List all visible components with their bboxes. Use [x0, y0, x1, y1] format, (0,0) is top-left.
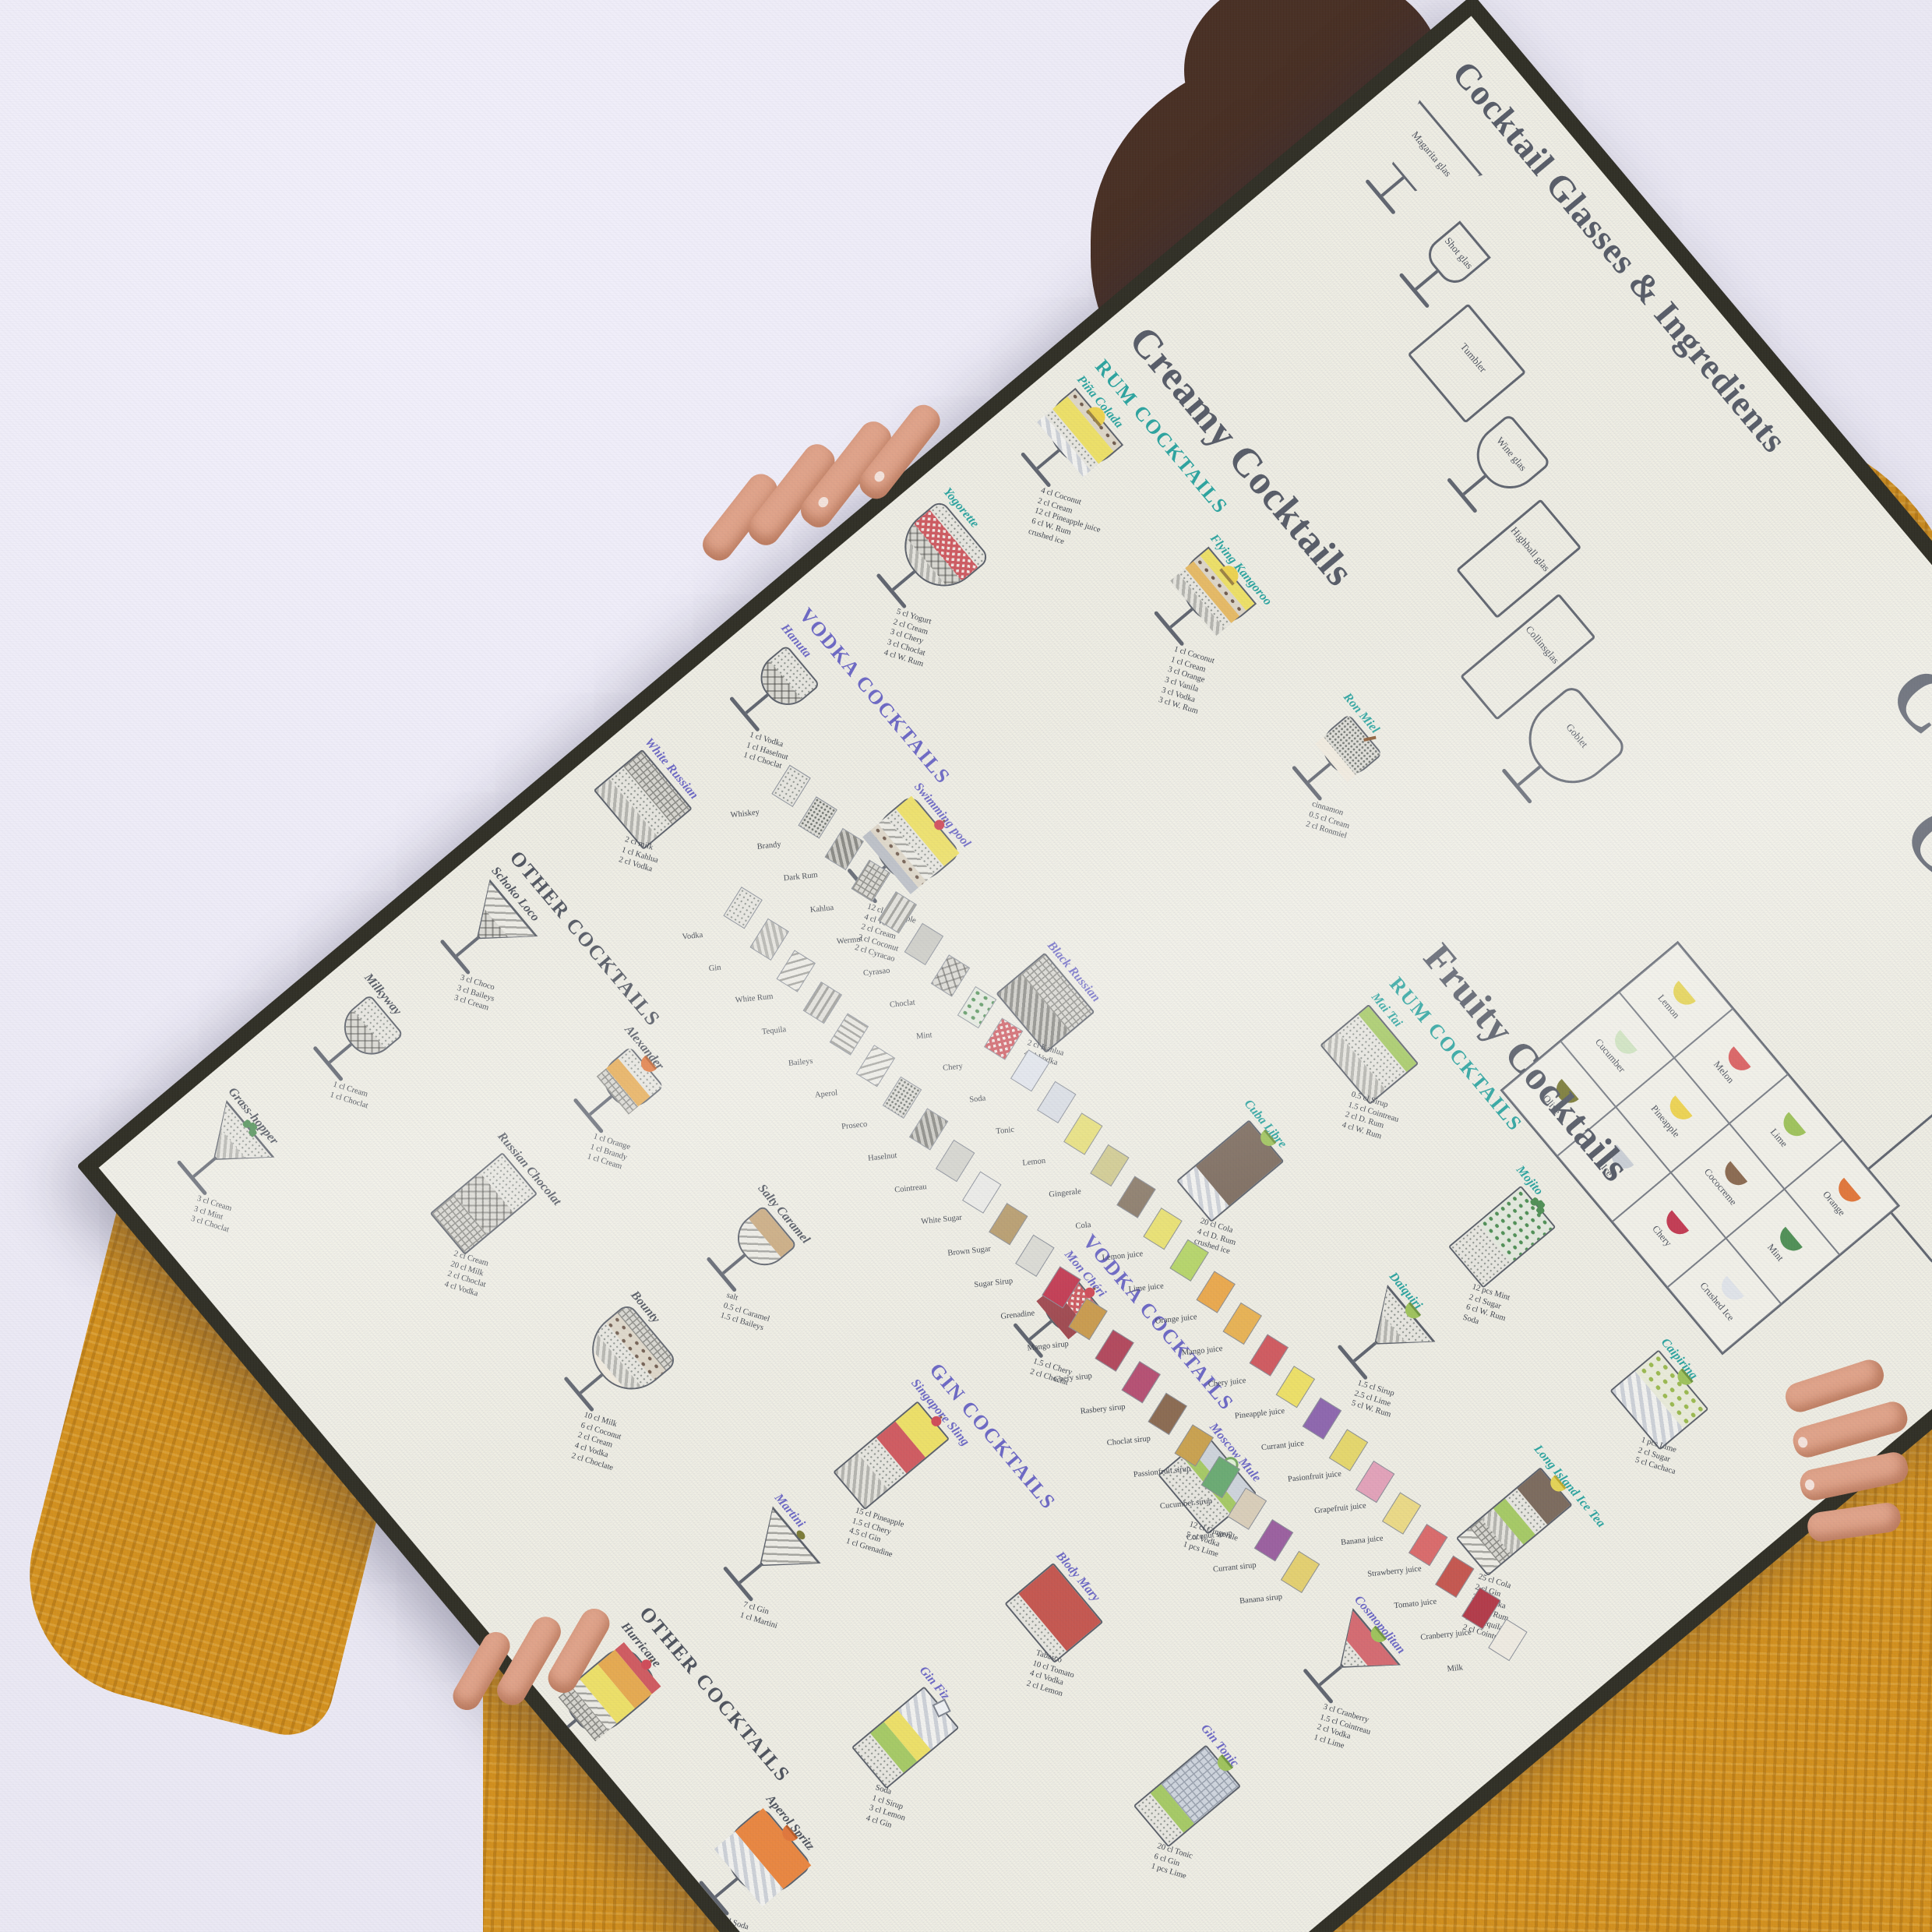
legend-swatch-label: Brown Sugar — [947, 1249, 956, 1258]
ingredient-labels: 0.5 cl Sirup1.5 cl Cointreau2 cl D. Rum4… — [1341, 1089, 1503, 1176]
legend-swatch-label: Cucumber sirup — [1159, 1501, 1168, 1511]
ingredient-labels: 1 cl Coconut1 cl Cream3 cl Orange3 cl Va… — [1157, 644, 1308, 746]
legend-swatch-label: Choclat sirup — [1106, 1438, 1115, 1447]
ingredient-labels: 15 cl Pineapple1.5 cl Chery4.5 cl Gin1 c… — [844, 1506, 1007, 1592]
legend-swatch-label: Pasionfruit juice — [1288, 1475, 1296, 1484]
glass-outline-label: Wine glas — [1487, 427, 1535, 481]
legend-swatch-label: Vodka — [682, 933, 690, 942]
legend-swatch-label: White Rum — [735, 996, 743, 1005]
legend-swatch-label: Choclat — [890, 1000, 898, 1010]
legend-swatch-label: Cola — [1075, 1222, 1084, 1231]
legend-swatch-label: Lemon juice — [1102, 1253, 1110, 1263]
legend-swatch-label: Passionfruit sirup — [1133, 1470, 1141, 1479]
legend-swatch-label: Chery — [943, 1063, 951, 1073]
legend-swatch-label: Sugar Sirup — [974, 1280, 982, 1289]
legend-swatch-label: Dark Rum — [783, 873, 791, 883]
glass-outline-label: Tumbler — [1441, 321, 1506, 395]
legend-swatch-label: Gingerale — [1049, 1190, 1057, 1199]
ingredient-labels: Tabasco10 cl Tomato4 cl Vodka2 cl Lemon — [1025, 1648, 1187, 1735]
legend-swatch-label: Cyrasao — [863, 968, 872, 978]
glass-outline-label: Magarita glas — [1397, 115, 1466, 194]
glass-outline-magarita-glas: Magarita glas — [1348, 100, 1483, 235]
legend-swatch-label: Currant juice — [1261, 1443, 1270, 1452]
legend-swatch-label: Brandy — [756, 842, 765, 851]
legend-swatch-label: Tequila — [761, 1027, 770, 1036]
ingredient-labels: 20 cl Tonic6 cl Gin1 pcs Lime — [1150, 1841, 1310, 1917]
legend-swatch-label: Tomato juice — [1394, 1601, 1402, 1610]
ingredient-labels: 10 cl Milk6 cl Coconut2 cl Cream4 cl Vod… — [570, 1410, 718, 1501]
legend-swatch-label: Gin — [708, 964, 717, 973]
legend-swatch-label: Banana juice — [1341, 1538, 1349, 1547]
legend-swatch-label: Soda — [969, 1095, 978, 1105]
poster-title-line1: COCKTAIL — [1876, 654, 1932, 1133]
legend-swatch-label: Proseco — [841, 1122, 850, 1131]
ingredient-labels: salt0.5 cl Caramel1.5 cl Baileys — [719, 1290, 861, 1361]
glass-outline-label: Shot glas — [1440, 233, 1477, 274]
legend-swatch-label: Rasbery sirup — [1080, 1407, 1088, 1416]
legend-swatch-label: Banana sirup — [1239, 1596, 1248, 1606]
legend-swatch-label: Currant sirup — [1213, 1565, 1222, 1574]
legend-swatch-label: Baileys — [788, 1059, 796, 1068]
legend-swatch-label: Mango sirup — [1027, 1343, 1035, 1352]
legend-swatch-label: Cranberry juice — [1420, 1633, 1429, 1642]
legend-swatch-label: Haselnut — [868, 1154, 876, 1163]
legend-swatch-label: Cointreau — [894, 1185, 903, 1194]
legend-swatch-label: Mango juice — [1181, 1348, 1190, 1357]
legend-swatch-label: Strawberry juice — [1367, 1570, 1376, 1579]
legend-swatch-label: Pineapple juice — [1234, 1412, 1243, 1421]
ingredient-labels: 5 cl Yogurt2 cl Cream3 cl Chery3 cl Choc… — [883, 607, 1031, 698]
legend-swatch-label: Lemon — [1022, 1158, 1031, 1168]
legend-swatch-label: Aperol — [815, 1091, 823, 1100]
ingredient-labels: 12 pcs Mint2 cl Sugar6 cl W. RumSoda — [1461, 1282, 1624, 1369]
legend-swatch-label: Lime juice — [1128, 1285, 1137, 1294]
legend-swatch-label: Milk — [1447, 1664, 1455, 1673]
legend-swatch-label: Kahlua — [809, 905, 818, 915]
ingredient-labels: 2 cl Cream20 cl Milk2 cl Choclat4 cl Vod… — [442, 1249, 587, 1330]
glass-outline-label: Collinsglas — [1521, 621, 1564, 669]
ingredient-labels: 3 cl Cream3 cl Mint3 cl Choclat — [189, 1193, 331, 1264]
ingredient-labels: 3 cl Choco3 cl Baileys3 cl Cream — [453, 973, 594, 1044]
poster-title: COCKTAIL CHART — [1814, 654, 1932, 1185]
legend-swatch-label: Mint — [916, 1031, 925, 1041]
photo-scene: Cocktail Glasses & Ingredients COCKTAIL … — [0, 0, 1932, 1932]
ingredient-labels: Soda1 cl Sirup3 cl Lemon4 cl Gin — [865, 1783, 1027, 1870]
legend-swatch-label: Whiskey — [730, 810, 739, 820]
glass-outline-tumbler: Tumbler — [1408, 303, 1527, 423]
legend-swatch-label: Tonic — [996, 1126, 1004, 1136]
ingredient-labels: 1 cl Orange1 cl Brandy1 cl Cream — [586, 1132, 728, 1203]
ingredient-labels: 4 cl Coconut2 cl Cream12 cl Pineapple ju… — [1027, 485, 1175, 576]
legend-swatch-label: Grenadine — [1000, 1312, 1009, 1321]
ingredient-labels: cinnamon0.5 cl Cream2 cl Ronmiel — [1304, 799, 1446, 870]
ingredient-labels: 1 cl Cream1 cl Choclat — [329, 1080, 467, 1141]
legend-swatch-label: Chery juice — [1207, 1380, 1216, 1389]
glass-outline-label: Goblet — [1546, 700, 1608, 770]
legend-swatch-label: White Sugar — [921, 1217, 929, 1226]
legend-swatch-label: Wermut — [836, 937, 844, 947]
glass-outline-label: Highball glas — [1507, 523, 1554, 576]
legend-swatch-label: Grapefruit juice — [1314, 1506, 1323, 1515]
legend-swatch-label: Coconut sirup — [1186, 1533, 1194, 1542]
legend-swatch-label: Chery sirup — [1053, 1375, 1062, 1384]
legend-swatch-label: Orange juice — [1155, 1317, 1163, 1326]
